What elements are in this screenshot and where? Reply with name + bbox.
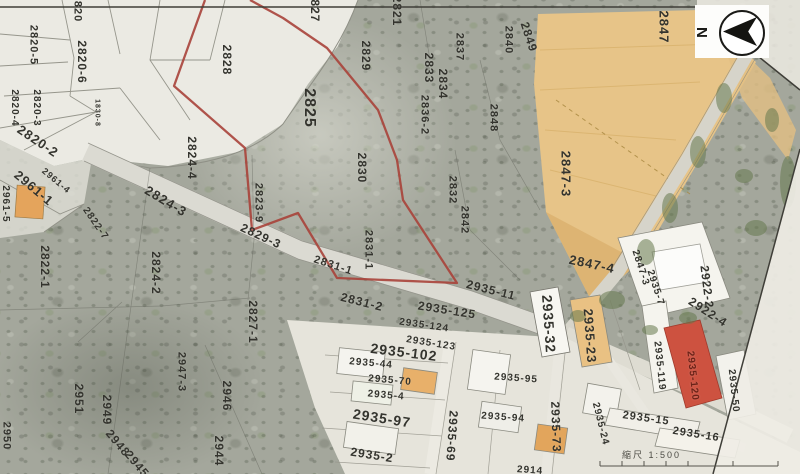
parcel-label-2820-5: 2820-5 bbox=[28, 25, 39, 65]
parcel-label-2822-1: 2822-1 bbox=[39, 245, 51, 288]
parcel-label-2824-2: 2824-2 bbox=[150, 251, 162, 294]
parcel-label-2848: 2848 bbox=[488, 104, 499, 132]
north-label: N bbox=[694, 27, 711, 38]
parcel-label-2831-1: 2831-1 bbox=[312, 255, 354, 278]
parcel-label-2829-3: 2829-3 bbox=[239, 221, 283, 250]
parcel-label-1830-8: 1830-8 bbox=[94, 99, 101, 127]
parcel-label-2935-95: 2935-95 bbox=[494, 372, 538, 385]
parcel-label-2935-23: 2935-23 bbox=[582, 308, 599, 363]
parcel-label-2935-24: 2935-24 bbox=[590, 402, 610, 447]
parcel-label-2823-9: 2823-9 bbox=[253, 183, 264, 223]
parcel-label-2820-3: 2820-3 bbox=[31, 89, 41, 126]
parcel-label-2935-7: 2935-7 bbox=[645, 269, 666, 307]
parcel-label-2935-4: 2935-4 bbox=[367, 389, 405, 402]
parcel-label-2935-97: 2935-97 bbox=[352, 407, 412, 430]
parcel-label-2935-11: 2935-11 bbox=[465, 278, 517, 302]
parcel-label-2828: 2828 bbox=[221, 45, 233, 76]
parcel-label-2961-5: 2961-5 bbox=[0, 185, 10, 222]
parcel-label-2821: 2821 bbox=[391, 0, 403, 26]
parcel-label-2935-69: 2935-69 bbox=[444, 410, 460, 462]
north-arrow: N bbox=[695, 5, 769, 58]
parcel-label-2827-1: 2827-1 bbox=[247, 300, 259, 343]
parcel-label-2935-50: 2935-50 bbox=[726, 369, 741, 414]
parcel-label-2949: 2949 bbox=[101, 395, 113, 426]
parcel-label-2847-3: 2847-3 bbox=[560, 151, 573, 197]
parcel-label-2935-16: 2935-16 bbox=[672, 426, 721, 444]
parcel-label-2935-44: 2935-44 bbox=[349, 357, 393, 371]
parcel-label-2951: 2951 bbox=[73, 384, 85, 415]
scale-label: 縮尺 1:500 bbox=[622, 448, 742, 461]
parcel-label-2946: 2946 bbox=[221, 381, 233, 412]
parcel-label-2842: 2842 bbox=[459, 206, 470, 234]
parcel-label-2914: 2914 bbox=[517, 465, 544, 474]
parcel-label-2820-4: 2820-4 bbox=[9, 89, 19, 126]
parcel-label-2833: 2833 bbox=[423, 53, 435, 84]
parcel-label-2830: 2830 bbox=[356, 153, 368, 184]
parcel-label-2945: 2945 bbox=[123, 448, 152, 474]
parcel-label-2831-2: 2831-2 bbox=[340, 291, 385, 313]
parcel-label-2840: 2840 bbox=[503, 26, 514, 54]
parcel-label-2947-3: 2947-3 bbox=[176, 352, 187, 392]
parcel-label-2820-2: 2820-2 bbox=[15, 123, 61, 160]
parcel-label-2935-32: 2935-32 bbox=[540, 294, 558, 353]
parcel-label-2935-119: 2935-119 bbox=[651, 341, 666, 391]
parcel-label-2935-125: 2935-125 bbox=[417, 299, 477, 320]
parcel-label-2824-4: 2824-4 bbox=[186, 136, 198, 179]
parcel-label-2827: 2827 bbox=[309, 0, 321, 22]
cadastral-map: 28202820-52820-62820-42820-32820-21830-8… bbox=[0, 0, 800, 474]
parcel-labels-layer: 28202820-52820-62820-42820-32820-21830-8… bbox=[0, 0, 800, 474]
parcel-label-2935-94: 2935-94 bbox=[481, 411, 525, 424]
parcel-label-2944: 2944 bbox=[213, 436, 225, 467]
parcel-label-2822-7: 2822-7 bbox=[80, 206, 109, 242]
parcel-label-2950: 2950 bbox=[1, 422, 12, 450]
parcel-label-2831-1: 2831-1 bbox=[363, 230, 374, 270]
parcel-label-2824-3: 2824-3 bbox=[143, 183, 190, 218]
parcel-label-2847: 2847 bbox=[658, 11, 671, 44]
parcel-label-2849: 2849 bbox=[519, 21, 540, 54]
parcel-label-2832: 2832 bbox=[447, 176, 458, 204]
parcel-label-2935-2: 2935-2 bbox=[350, 446, 395, 465]
parcel-label-2935-124: 2935-124 bbox=[398, 318, 449, 335]
parcel-label-2935-70: 2935-70 bbox=[368, 374, 412, 388]
parcel-label-2935-15: 2935-15 bbox=[622, 410, 670, 427]
parcel-label-2834: 2834 bbox=[437, 69, 449, 100]
parcel-label-2935-120: 2935-120 bbox=[684, 350, 699, 401]
parcel-label-2825: 2825 bbox=[301, 88, 317, 128]
parcel-label-2829: 2829 bbox=[360, 41, 372, 72]
parcel-label-2820: 2820 bbox=[72, 0, 83, 22]
parcel-label-2820-6: 2820-6 bbox=[76, 40, 88, 83]
parcel-label-2836-2: 2836-2 bbox=[419, 95, 430, 135]
parcel-label-2847-4: 2847-4 bbox=[568, 253, 616, 275]
parcel-label-2935-73: 2935-73 bbox=[549, 401, 563, 452]
parcel-label-2837: 2837 bbox=[454, 33, 465, 61]
